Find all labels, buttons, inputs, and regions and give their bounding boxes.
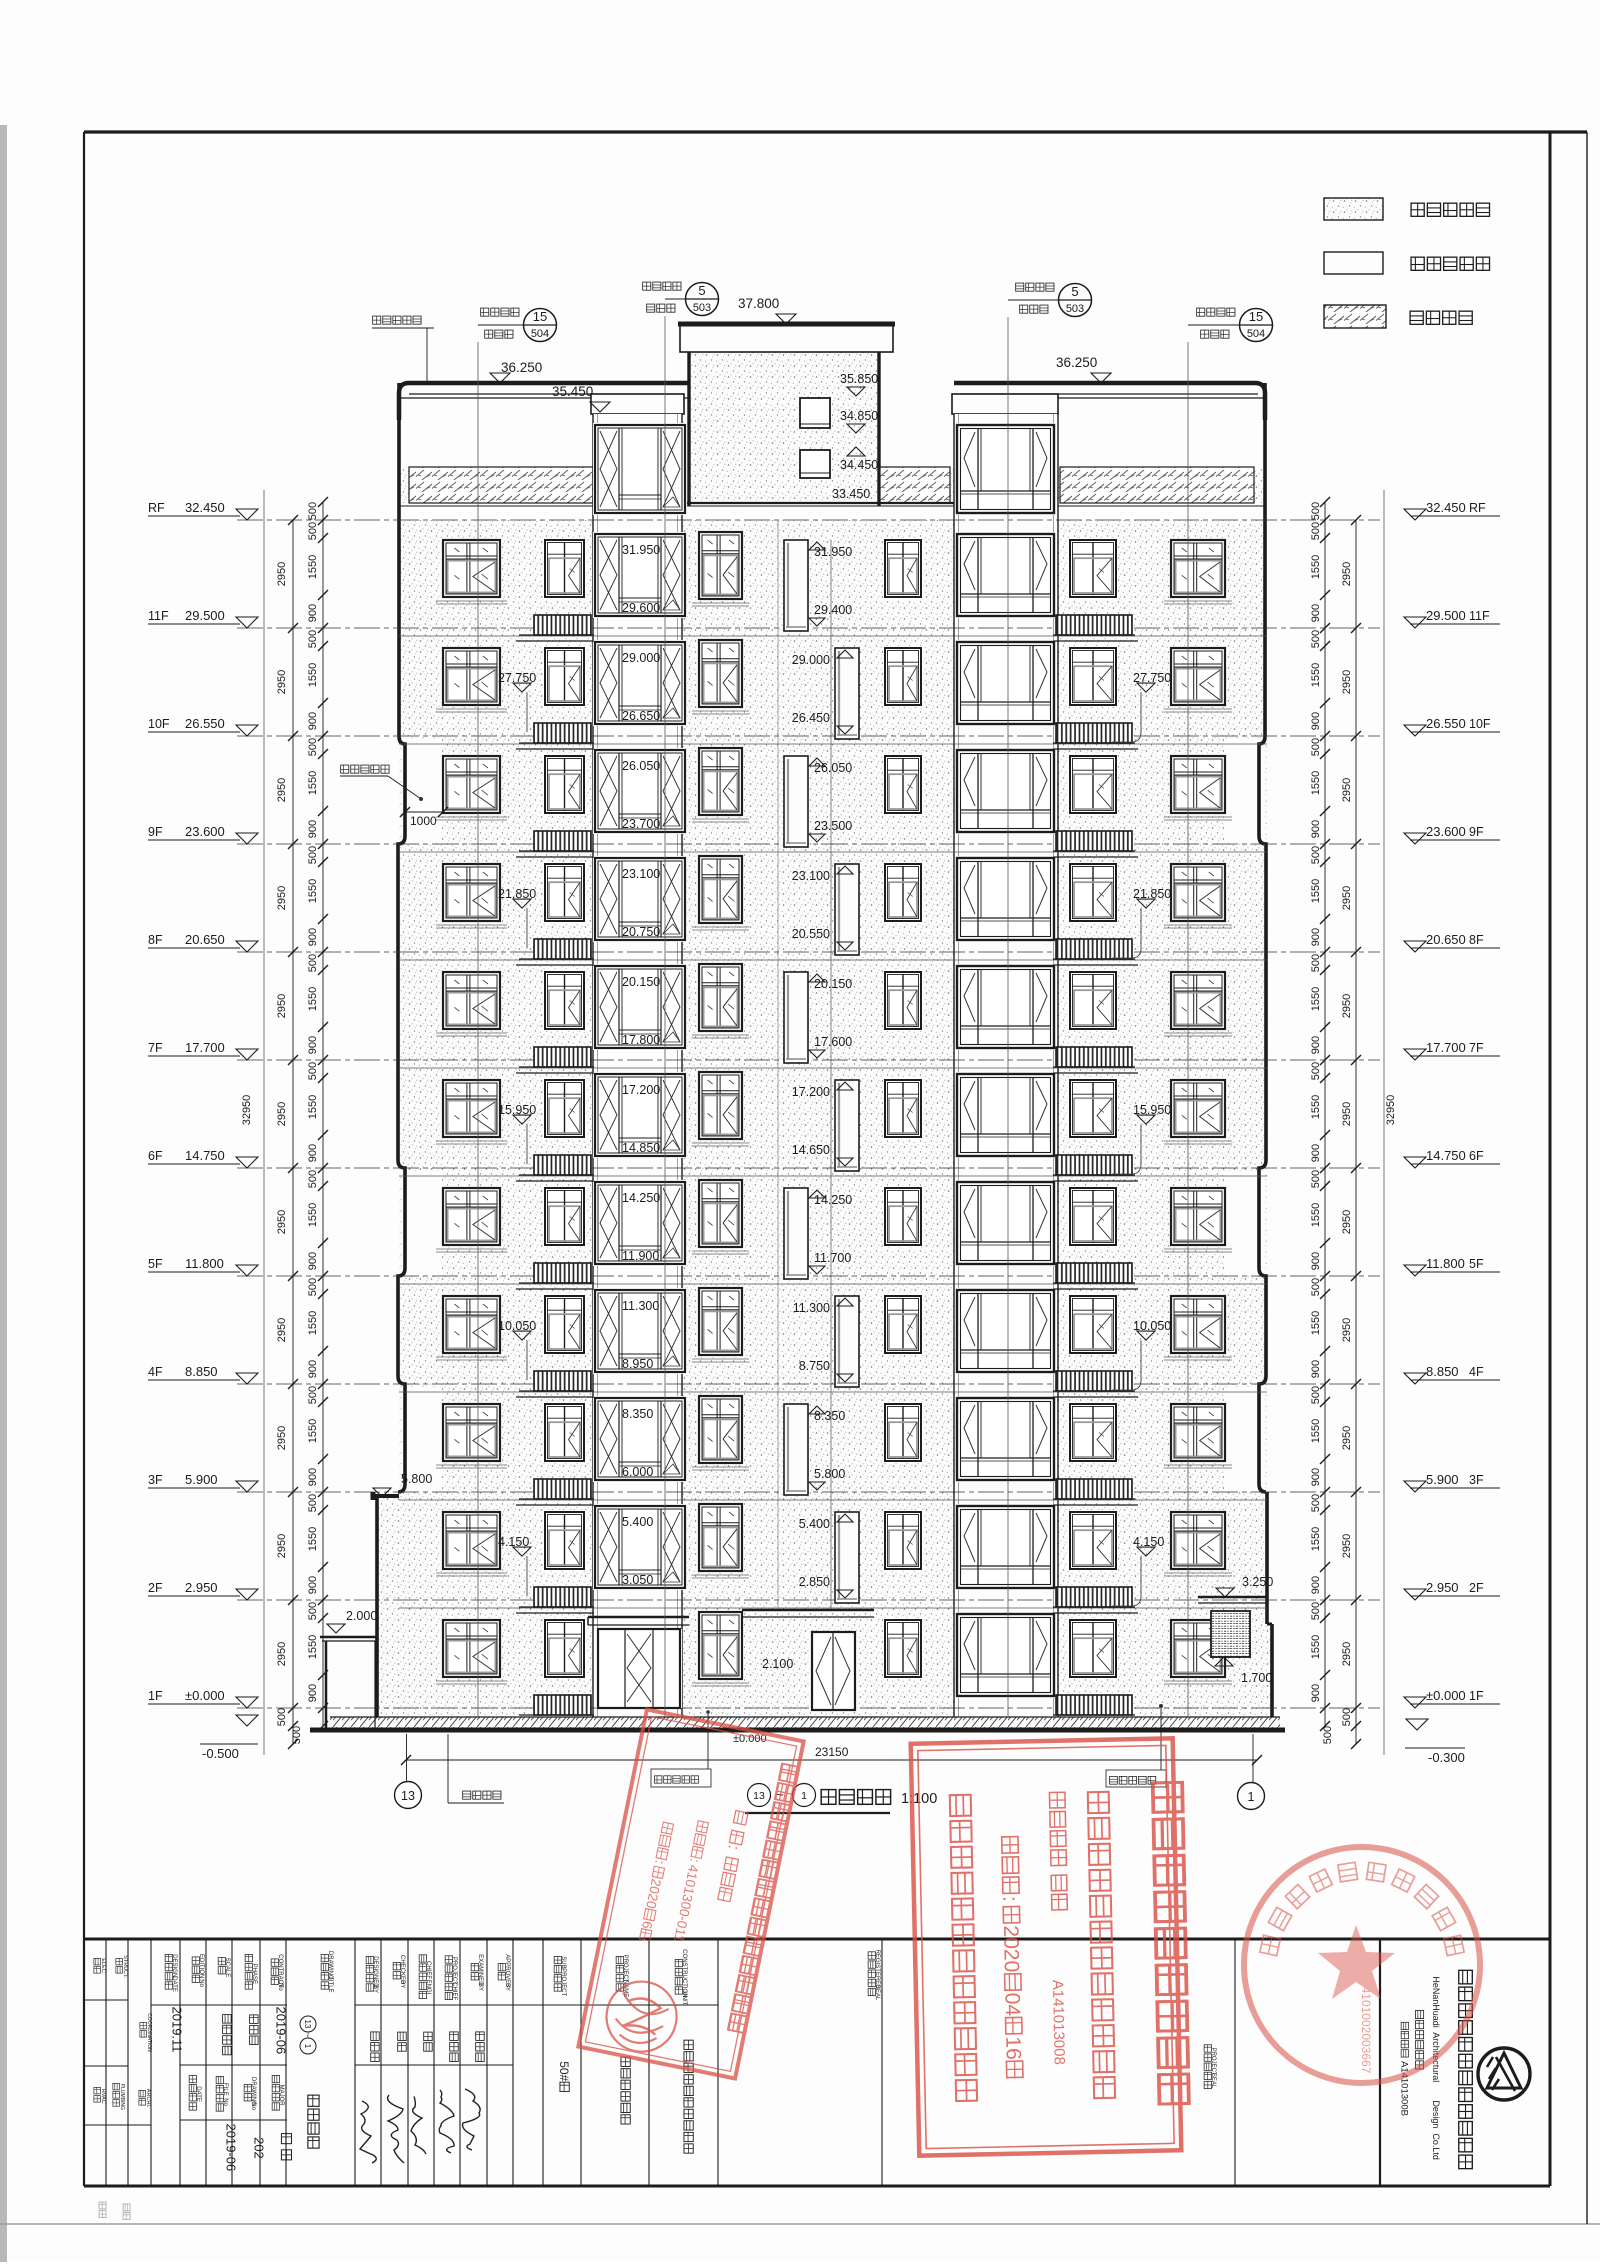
svg-text:3.050: 3.050 — [622, 1573, 653, 1587]
svg-text:2950: 2950 — [1341, 670, 1353, 694]
svg-text:500: 500 — [1341, 1708, 1353, 1726]
svg-text:14.250: 14.250 — [622, 1191, 660, 1205]
svg-text:13: 13 — [303, 2020, 312, 2029]
svg-text:16: 16 — [1001, 2036, 1024, 2060]
svg-text:500: 500 — [1322, 1726, 1334, 1744]
svg-text::: : — [998, 1896, 1021, 1902]
svg-text:14.250: 14.250 — [814, 1193, 852, 1207]
svg-text:2950: 2950 — [1341, 886, 1353, 910]
svg-text:31.950: 31.950 — [622, 543, 660, 557]
svg-text:2950: 2950 — [1341, 1102, 1353, 1126]
svg-text:Design: Design — [1431, 2100, 1441, 2128]
svg-text:3F: 3F — [148, 1473, 163, 1487]
svg-text:900: 900 — [1310, 712, 1322, 730]
svg-text:900: 900 — [307, 820, 319, 838]
svg-text:2F: 2F — [148, 1581, 163, 1595]
svg-text:23.700: 23.700 — [622, 817, 660, 831]
svg-text:1: 1 — [303, 2044, 312, 2049]
svg-text:5.800: 5.800 — [814, 1467, 845, 1481]
svg-text:1550: 1550 — [1310, 987, 1322, 1011]
svg-text:500: 500 — [307, 1170, 319, 1188]
svg-text:20.150: 20.150 — [814, 977, 852, 991]
svg-text:34.850: 34.850 — [840, 409, 878, 423]
svg-text:1000: 1000 — [410, 814, 437, 828]
svg-text:14.750: 14.750 — [185, 1148, 225, 1163]
svg-text:No: No — [222, 2098, 228, 2106]
svg-text:26.550: 26.550 — [185, 716, 225, 731]
svg-text:500: 500 — [276, 1708, 288, 1726]
svg-text:5: 5 — [1071, 284, 1078, 299]
svg-text:2020: 2020 — [999, 1925, 1023, 1972]
svg-text:26.050: 26.050 — [622, 759, 660, 773]
svg-text:37.800: 37.800 — [738, 296, 779, 311]
svg-text:2.100: 2.100 — [762, 1657, 793, 1671]
svg-text:900: 900 — [1310, 928, 1322, 946]
svg-text:10F: 10F — [1469, 717, 1491, 731]
svg-text:1550: 1550 — [307, 987, 319, 1011]
svg-text:2950: 2950 — [1341, 1642, 1353, 1666]
svg-text:2019-06: 2019-06 — [224, 2124, 239, 2172]
svg-text:1F: 1F — [148, 1689, 163, 1703]
svg-text:2950: 2950 — [1341, 1426, 1353, 1450]
svg-text:10F: 10F — [148, 717, 170, 731]
svg-text:900: 900 — [307, 604, 319, 622]
svg-text:1550: 1550 — [1310, 1635, 1322, 1659]
svg-text:2950: 2950 — [276, 886, 288, 910]
svg-text:900: 900 — [1310, 820, 1322, 838]
svg-text:8.950: 8.950 — [622, 1357, 653, 1371]
svg-text:3.250: 3.250 — [1242, 1575, 1273, 1589]
svg-text:BY: BY — [477, 1983, 483, 1991]
svg-text:500: 500 — [307, 630, 319, 648]
svg-text:20.650: 20.650 — [1426, 932, 1466, 947]
svg-text:26.550: 26.550 — [1426, 716, 1466, 731]
svg-text:PLUMBING: PLUMBING — [119, 2084, 125, 2110]
svg-text:5.900: 5.900 — [1426, 1472, 1459, 1487]
svg-text:PROJECT: PROJECT — [451, 1957, 457, 1985]
svg-text:503: 503 — [693, 302, 711, 314]
svg-text:ENGI: ENGI — [425, 1980, 431, 1995]
svg-text:2019.11: 2019.11 — [170, 2007, 185, 2053]
svg-text:2950: 2950 — [1341, 778, 1353, 802]
svg-text:900: 900 — [1310, 1576, 1322, 1594]
svg-text:50#: 50# — [557, 2061, 571, 2081]
svg-text:04: 04 — [1000, 1992, 1023, 2016]
svg-text:2950: 2950 — [276, 562, 288, 586]
svg-text:11.300: 11.300 — [622, 1299, 659, 1313]
svg-text:COORDINATION: COORDINATION — [146, 2013, 152, 2052]
svg-text:14.750: 14.750 — [1426, 1148, 1466, 1163]
svg-text:1F: 1F — [1469, 1689, 1484, 1703]
svg-text:900: 900 — [307, 1468, 319, 1486]
svg-text:5F: 5F — [148, 1257, 163, 1271]
svg-text:503: 503 — [1066, 303, 1084, 315]
svg-text:32950: 32950 — [1385, 1095, 1397, 1126]
svg-text:2950: 2950 — [1341, 1210, 1353, 1234]
svg-text:13: 13 — [401, 1789, 415, 1803]
svg-text:29.400: 29.400 — [814, 603, 852, 617]
svg-text:Co.Ltd: Co.Ltd — [1431, 2133, 1441, 2160]
svg-text:PROJECT: PROJECT — [560, 1968, 566, 1996]
svg-text:14.850: 14.850 — [622, 1141, 660, 1155]
svg-text:1550: 1550 — [307, 1527, 319, 1551]
svg-text:1.700: 1.700 — [1241, 1671, 1272, 1685]
svg-text:17.200: 17.200 — [622, 1083, 660, 1097]
svg-text:FILE: FILE — [222, 2083, 228, 2096]
svg-text:6.000: 6.000 — [622, 1465, 653, 1479]
svg-text:5.400: 5.400 — [799, 1517, 830, 1531]
svg-text:2F: 2F — [1469, 1581, 1484, 1595]
svg-text:1550: 1550 — [307, 1095, 319, 1119]
svg-text:1550: 1550 — [307, 1311, 319, 1335]
svg-text:1550: 1550 — [1310, 663, 1322, 687]
svg-text:500: 500 — [307, 1062, 319, 1080]
svg-text:1550: 1550 — [1310, 879, 1322, 903]
svg-text:23.500: 23.500 — [814, 819, 852, 833]
svg-text:35.450: 35.450 — [552, 384, 593, 399]
svg-text:CHIEF: CHIEF — [425, 1961, 431, 1979]
svg-text:4101002003667: 4101002003667 — [1359, 1987, 1373, 2074]
svg-text:32.450: 32.450 — [1426, 500, 1466, 515]
svg-text:1550: 1550 — [307, 1419, 319, 1443]
svg-text:BY: BY — [504, 1983, 510, 1991]
svg-text:34.450: 34.450 — [840, 458, 878, 472]
svg-text:8.850: 8.850 — [1426, 1364, 1459, 1379]
svg-text:No: No — [198, 1979, 204, 1987]
svg-text:900: 900 — [307, 928, 319, 946]
svg-text:ARCHI.: ARCHI. — [145, 2089, 151, 2108]
svg-text:2950: 2950 — [1341, 1534, 1353, 1558]
svg-text:17.800: 17.800 — [622, 1033, 660, 1047]
svg-text:±0.000: ±0.000 — [1426, 1688, 1466, 1703]
svg-text:2950: 2950 — [276, 1642, 288, 1666]
svg-text:900: 900 — [1310, 1144, 1322, 1162]
svg-text:14.650: 14.650 — [792, 1143, 830, 1157]
svg-text:23.600: 23.600 — [1426, 824, 1466, 839]
svg-text:8.350: 8.350 — [814, 1409, 845, 1423]
svg-text:1550: 1550 — [307, 1203, 319, 1227]
svg-text:900: 900 — [307, 1144, 319, 1162]
svg-text:5.900: 5.900 — [185, 1472, 218, 1487]
svg-text:2950: 2950 — [276, 994, 288, 1018]
svg-text:504: 504 — [531, 328, 549, 340]
svg-text:HeNan: HeNan — [1431, 1976, 1441, 2004]
svg-text:900: 900 — [307, 712, 319, 730]
svg-text:BY: BY — [399, 1980, 405, 1988]
svg-text:DATE: DATE — [171, 1976, 177, 1992]
svg-text:RF: RF — [1469, 501, 1486, 515]
svg-text:15: 15 — [533, 309, 547, 324]
svg-text:~: ~ — [303, 2032, 313, 2037]
svg-text:35.850: 35.850 — [840, 372, 878, 386]
svg-text:6F: 6F — [1469, 1149, 1484, 1163]
svg-text:500: 500 — [307, 1386, 319, 1404]
svg-text:17.700: 17.700 — [185, 1040, 225, 1055]
svg-text:2.000: 2.000 — [346, 1609, 377, 1623]
svg-text:8.850: 8.850 — [185, 1364, 218, 1379]
svg-text:9F: 9F — [1469, 825, 1484, 839]
svg-text:1: 1 — [1248, 1790, 1255, 1804]
svg-text:500: 500 — [307, 522, 319, 540]
svg-text:2950: 2950 — [276, 670, 288, 694]
svg-text:1550: 1550 — [307, 663, 319, 687]
svg-text:7F: 7F — [1469, 1041, 1484, 1055]
svg-text:-0.500: -0.500 — [202, 1746, 239, 1761]
svg-text:2.950: 2.950 — [185, 1580, 218, 1595]
svg-text:23.100: 23.100 — [792, 869, 830, 883]
svg-text:5: 5 — [698, 283, 705, 298]
svg-text:2950: 2950 — [276, 1102, 288, 1126]
svg-text:2950: 2950 — [276, 1426, 288, 1450]
svg-text:1: 1 — [801, 1790, 807, 1802]
svg-text:1550: 1550 — [1310, 771, 1322, 795]
svg-text:A14101300B: A14101300B — [1398, 2061, 1409, 2116]
svg-text:20.150: 20.150 — [622, 975, 660, 989]
svg-text:900: 900 — [307, 1252, 319, 1270]
svg-text:HVAC: HVAC — [100, 2089, 106, 2104]
svg-text:23.600: 23.600 — [185, 824, 225, 839]
svg-text:±0.000: ±0.000 — [185, 1688, 225, 1703]
svg-text:BY: BY — [372, 1985, 378, 1993]
svg-text:29.600: 29.600 — [622, 601, 660, 615]
svg-text:SUB: SUB — [560, 1956, 566, 1968]
svg-text:32950: 32950 — [241, 1095, 253, 1126]
svg-text:17.700: 17.700 — [1426, 1040, 1466, 1055]
svg-text:5F: 5F — [1469, 1257, 1484, 1271]
svg-text:900: 900 — [307, 1576, 319, 1594]
svg-text:202: 202 — [252, 2137, 267, 2159]
svg-text:17.200: 17.200 — [792, 1085, 830, 1099]
svg-text:36.250: 36.250 — [1056, 355, 1097, 370]
svg-text:MAJOR: MAJOR — [278, 2085, 284, 2107]
svg-text:29.500: 29.500 — [185, 608, 225, 623]
svg-text:23150: 23150 — [815, 1745, 849, 1759]
svg-text:1550: 1550 — [1310, 1419, 1322, 1443]
svg-text:900: 900 — [307, 1036, 319, 1054]
svg-text:PROJECT: PROJECT — [1210, 2048, 1216, 2076]
svg-text:23.100: 23.100 — [622, 867, 660, 881]
svg-text:900: 900 — [1310, 1252, 1322, 1270]
svg-text:8.350: 8.350 — [622, 1407, 653, 1421]
svg-text:2950: 2950 — [1341, 1318, 1353, 1342]
svg-text:REGISTERED: REGISTERED — [874, 1950, 880, 1990]
svg-text:2950: 2950 — [276, 1210, 288, 1234]
svg-text:1550: 1550 — [1310, 1527, 1322, 1551]
svg-text:26.050: 26.050 — [814, 761, 852, 775]
svg-text:11.700: 11.700 — [814, 1251, 851, 1265]
svg-text:1550: 1550 — [1310, 1311, 1322, 1335]
svg-text:3F: 3F — [1469, 1473, 1484, 1487]
svg-text:500: 500 — [307, 1602, 319, 1620]
svg-text:1550: 1550 — [1310, 1203, 1322, 1227]
svg-text:8.750: 8.750 — [799, 1359, 830, 1373]
svg-text:11F: 11F — [1469, 609, 1490, 623]
svg-text:CHIEF: CHIEF — [451, 1982, 457, 2000]
svg-text:20.750: 20.750 — [622, 925, 660, 939]
svg-text:RF: RF — [148, 501, 165, 515]
svg-text:20.550: 20.550 — [792, 927, 830, 941]
svg-text:-0.300: -0.300 — [1428, 1750, 1465, 1765]
svg-text:504: 504 — [1247, 328, 1265, 340]
svg-text:TITLE: TITLE — [327, 1976, 333, 1992]
svg-text:DESIGN: DESIGN — [171, 1954, 177, 1977]
svg-text:2950: 2950 — [1341, 994, 1353, 1018]
svg-text:5.800: 5.800 — [401, 1472, 432, 1486]
svg-text:No: No — [250, 2102, 256, 2110]
svg-text:DATE: DATE — [195, 2086, 201, 2102]
svg-text:29.000: 29.000 — [792, 653, 830, 667]
svg-text:7F: 7F — [148, 1041, 163, 1055]
svg-text:29.500: 29.500 — [1426, 608, 1466, 623]
svg-text:2.850: 2.850 — [799, 1575, 830, 1589]
svg-text:11.300: 11.300 — [793, 1301, 830, 1315]
svg-text:15: 15 — [1249, 309, 1263, 324]
svg-text:11F: 11F — [148, 609, 169, 623]
svg-text:2950: 2950 — [276, 1534, 288, 1558]
svg-text:4F: 4F — [1469, 1365, 1484, 1379]
svg-text:500: 500 — [307, 1278, 319, 1296]
svg-text:29.000: 29.000 — [622, 651, 660, 665]
svg-text:2.950: 2.950 — [1426, 1580, 1459, 1595]
svg-text:DESIGNED: DESIGNED — [372, 1956, 378, 1988]
svg-text:2950: 2950 — [1341, 562, 1353, 586]
svg-text:26.450: 26.450 — [792, 711, 830, 725]
svg-text:11.800: 11.800 — [1426, 1256, 1465, 1271]
svg-text:1550: 1550 — [307, 771, 319, 795]
svg-text:500: 500 — [307, 954, 319, 972]
svg-text:20.650: 20.650 — [185, 932, 225, 947]
svg-text:EDITION: EDITION — [198, 1954, 204, 1978]
svg-text:900: 900 — [1310, 1360, 1322, 1378]
svg-text:900: 900 — [307, 1684, 319, 1702]
svg-text:900: 900 — [307, 1360, 319, 1378]
svg-text:No: No — [277, 1983, 283, 1991]
svg-text:1550: 1550 — [1310, 1095, 1322, 1119]
svg-text:900: 900 — [1310, 1468, 1322, 1486]
svg-text:32.450: 32.450 — [185, 500, 225, 515]
svg-text:2019-06: 2019-06 — [274, 2007, 289, 2055]
svg-text:33.450: 33.450 — [832, 487, 870, 501]
svg-text:PHASE: PHASE — [251, 1964, 257, 1984]
svg-text:1550: 1550 — [307, 1635, 319, 1659]
svg-text:6F: 6F — [148, 1149, 163, 1163]
svg-text:5.400: 5.400 — [622, 1515, 653, 1529]
svg-text:500: 500 — [307, 738, 319, 756]
svg-text:900: 900 — [1310, 604, 1322, 622]
svg-text:11.900: 11.900 — [622, 1249, 659, 1263]
svg-text:SCALE: SCALE — [224, 1958, 230, 1978]
svg-text:SEAL: SEAL — [874, 1985, 880, 2001]
svg-text:1550: 1550 — [1310, 555, 1322, 579]
svg-text:UNIT: UNIT — [681, 1991, 687, 2005]
svg-text:4F: 4F — [148, 1365, 163, 1379]
svg-text:Huadi: Huadi — [1431, 2004, 1441, 2028]
svg-text:9F: 9F — [148, 825, 163, 839]
svg-text:500: 500 — [307, 502, 319, 520]
svg-text:2950: 2950 — [276, 1318, 288, 1342]
svg-text:500: 500 — [291, 1726, 303, 1744]
svg-text:500: 500 — [307, 1494, 319, 1512]
svg-text:8F: 8F — [148, 933, 163, 947]
svg-text:2950: 2950 — [276, 778, 288, 802]
svg-text:1550: 1550 — [307, 879, 319, 903]
svg-text:900: 900 — [1310, 1036, 1322, 1054]
svg-text:13: 13 — [753, 1790, 765, 1802]
svg-text:900: 900 — [1310, 1684, 1322, 1702]
svg-text:A141013008: A141013008 — [1049, 1980, 1068, 2065]
svg-text:1550: 1550 — [307, 555, 319, 579]
svg-text:500: 500 — [1310, 502, 1322, 520]
svg-text:8F: 8F — [1469, 933, 1484, 947]
svg-text:31.950: 31.950 — [814, 545, 852, 559]
svg-text:11.800: 11.800 — [185, 1256, 224, 1271]
svg-text:STRUCT.: STRUCT. — [122, 1955, 128, 1979]
svg-text:EXAMINED: EXAMINED — [477, 1954, 483, 1986]
svg-text:PROJECT: PROJECT — [622, 1955, 628, 1983]
svg-text:26.650: 26.650 — [622, 709, 660, 723]
svg-text:500: 500 — [307, 846, 319, 864]
svg-text:CONSTRUCTION: CONSTRUCTION — [681, 1949, 687, 1997]
svg-text:SEAL: SEAL — [1210, 2073, 1216, 2089]
svg-text:17.600: 17.600 — [814, 1035, 852, 1049]
svg-text:ELEC.: ELEC. — [100, 1958, 106, 1974]
